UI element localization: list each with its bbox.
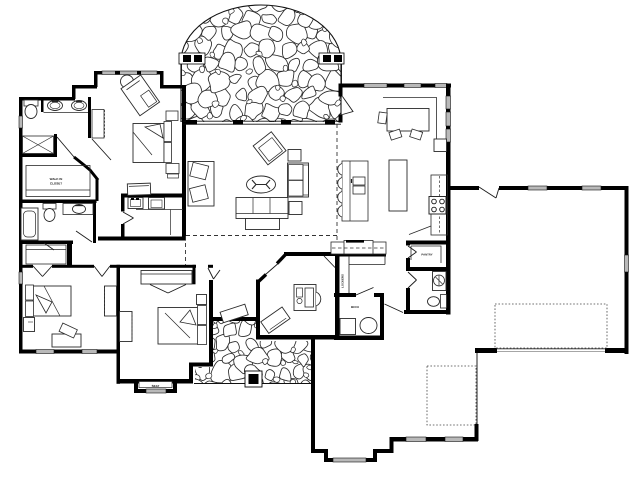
- svg-text:SEAT: SEAT: [152, 384, 160, 388]
- svg-text:MECH: MECH: [351, 305, 359, 309]
- svg-text:CLOSET: CLOSET: [50, 182, 62, 186]
- svg-text:LOCKERS: LOCKERS: [341, 274, 345, 288]
- svg-text:WALK IN: WALK IN: [50, 177, 63, 181]
- svg-text:PANTRY: PANTRY: [421, 253, 432, 257]
